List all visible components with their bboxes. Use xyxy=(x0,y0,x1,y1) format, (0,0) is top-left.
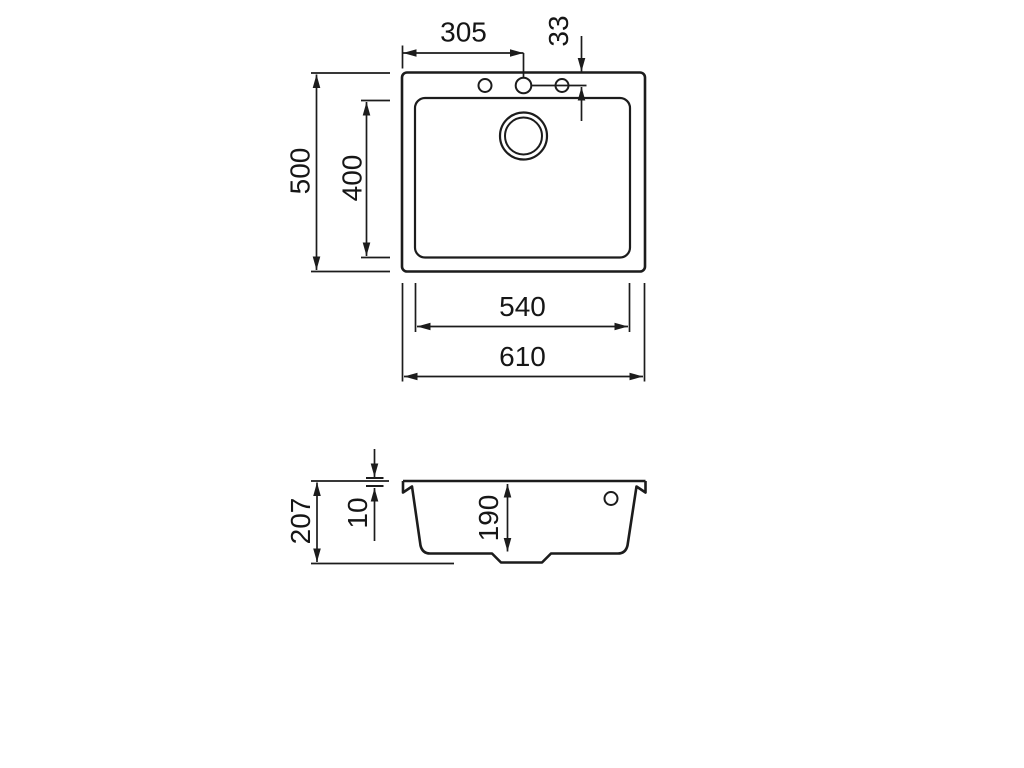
faucet-hole-center xyxy=(516,78,532,94)
dim-tap-hole-edge-distance: 33 xyxy=(543,15,582,121)
sink-outer-outline xyxy=(402,73,645,272)
dim-400-label: 400 xyxy=(337,155,368,202)
section-overflow-hole xyxy=(605,492,618,505)
dim-610-label: 610 xyxy=(499,341,546,372)
dim-305-label: 305 xyxy=(440,17,487,48)
drain-inner-circle xyxy=(505,118,542,155)
dim-bowl-inner-depth: 190 xyxy=(473,484,508,552)
dim-bowl-width: 540 xyxy=(416,283,630,332)
dim-10-label: 10 xyxy=(342,497,373,528)
dim-540-label: 540 xyxy=(499,291,546,322)
dim-207-label: 207 xyxy=(285,498,316,545)
dim-rim-thickness: 10 xyxy=(342,449,384,541)
sink-bowl-outline xyxy=(415,98,630,258)
sink-section-view: 207 10 190 xyxy=(285,449,646,564)
drain-outer-circle xyxy=(500,113,547,160)
technical-drawing-canvas: 305 33 500 400 xyxy=(0,0,1024,768)
dim-33-label: 33 xyxy=(543,15,574,46)
sink-dimension-drawing: 305 33 500 400 xyxy=(0,0,1024,768)
sink-top-view: 305 33 500 400 xyxy=(285,15,646,381)
dim-500-label: 500 xyxy=(285,148,316,195)
faucet-hole-left xyxy=(479,79,492,92)
dim-bowl-depth: 400 xyxy=(337,101,391,258)
dim-tap-hole-offset: 305 xyxy=(403,17,524,78)
dim-190-label: 190 xyxy=(473,495,504,542)
